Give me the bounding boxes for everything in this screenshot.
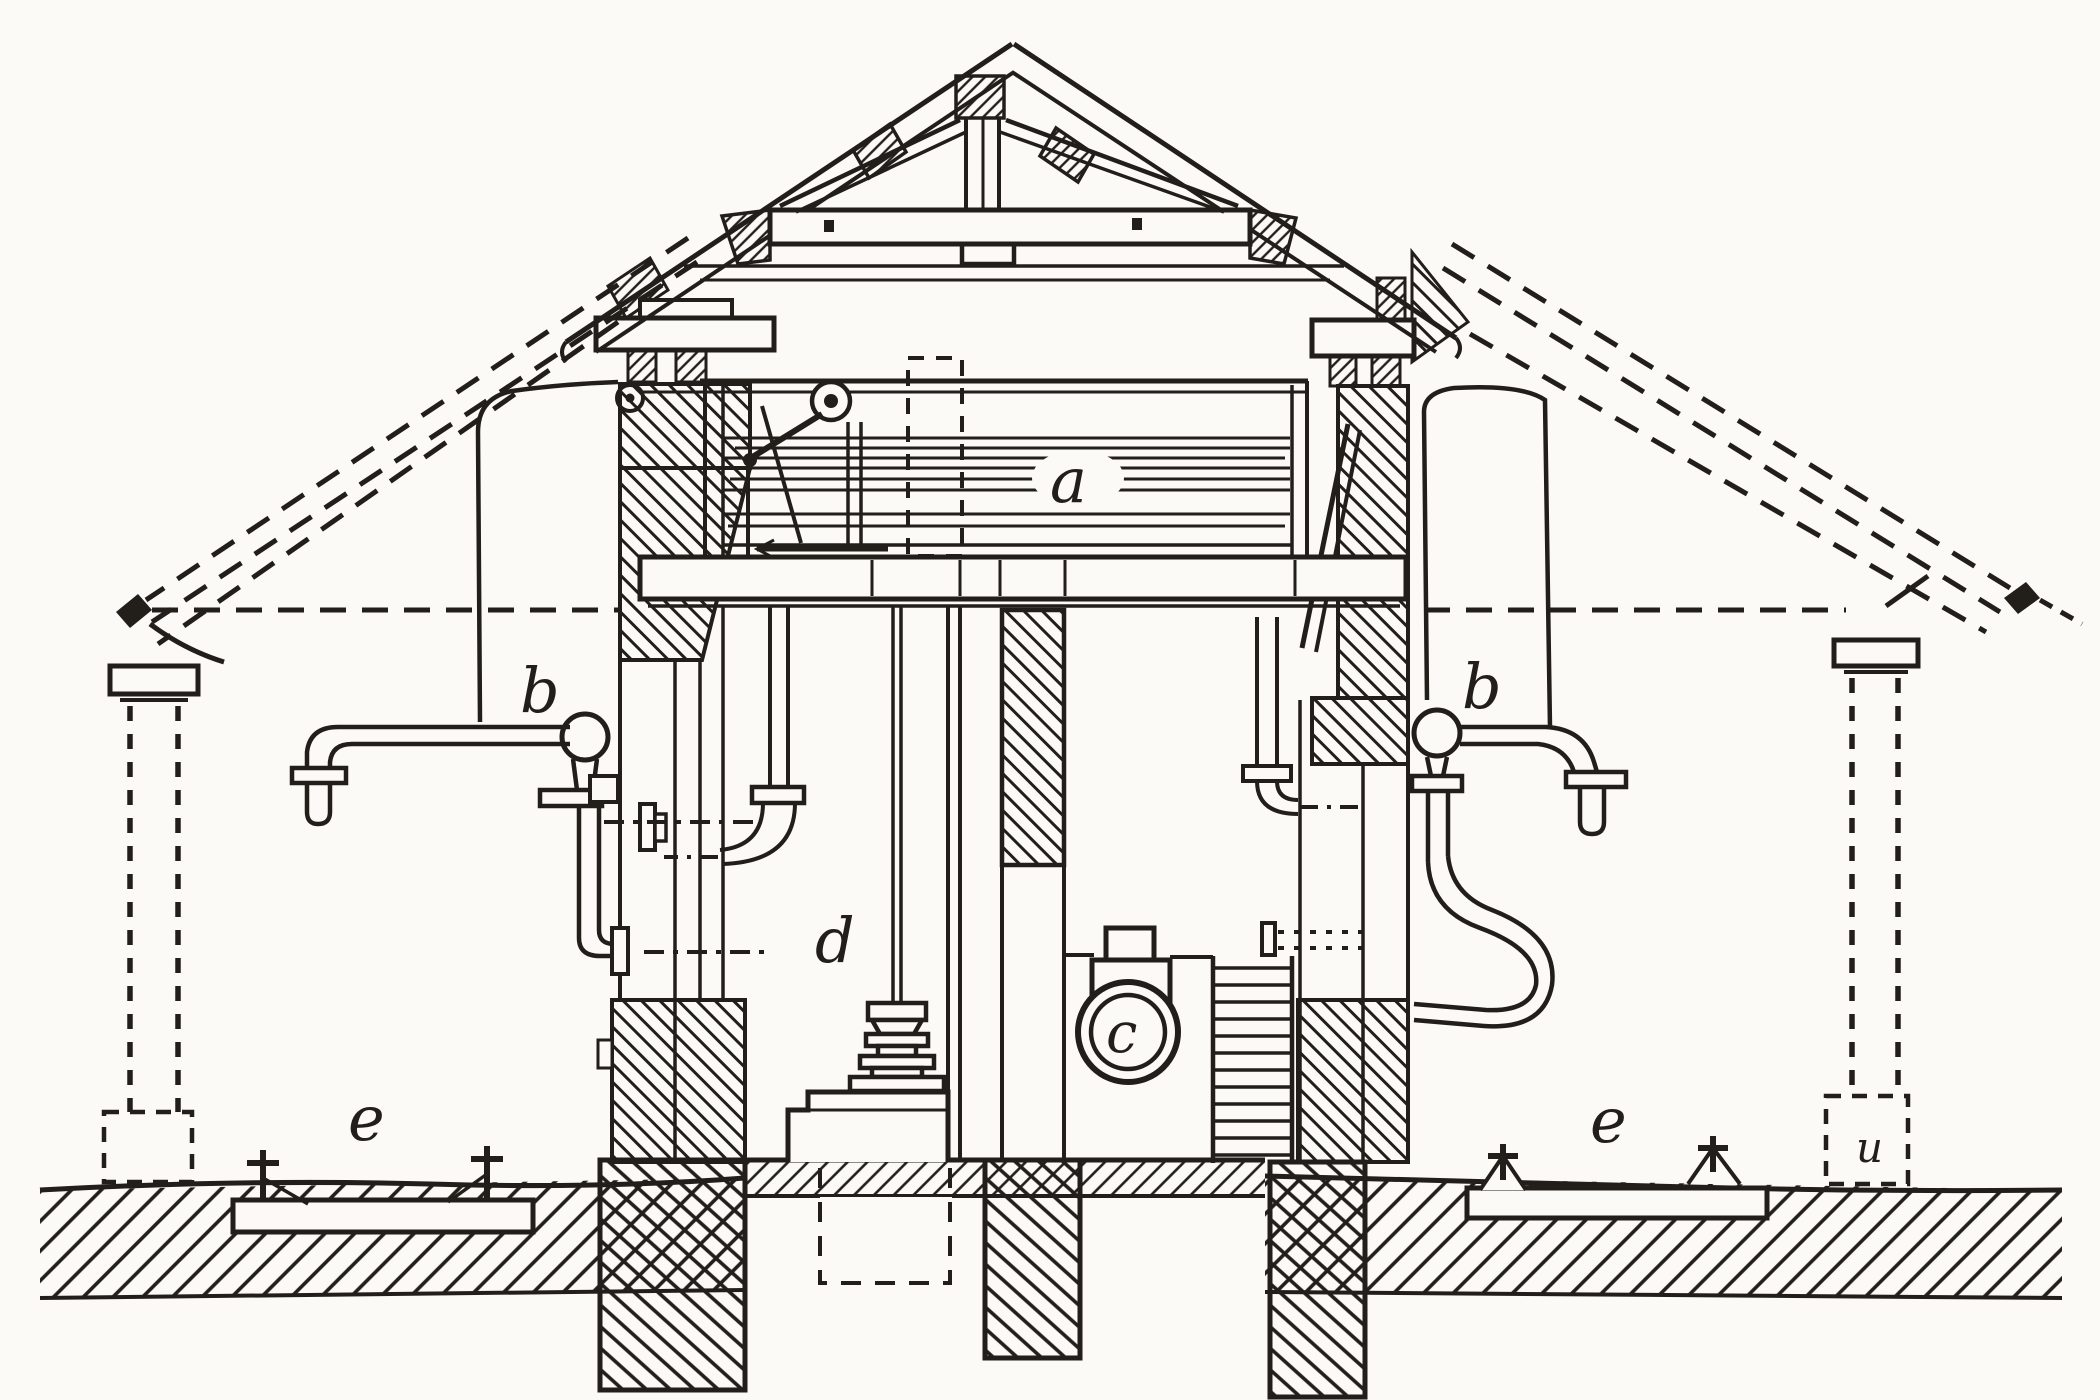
label-press: d xyxy=(815,904,855,977)
label-pipe-left: b xyxy=(520,654,560,727)
float-ball xyxy=(562,714,608,760)
float-ball xyxy=(1414,710,1460,756)
left-rafter xyxy=(566,44,1012,342)
right-column xyxy=(1826,640,1918,1184)
right-foundation-pier xyxy=(1270,1162,1365,1397)
left-foundation-pier xyxy=(600,1160,745,1390)
engraving-page: a b b c d e e u xyxy=(0,0,2100,1400)
building-section-engraving: a b b c d e e u xyxy=(0,0,2100,1400)
ladder xyxy=(1213,956,1292,1163)
center-foundation-pier xyxy=(985,1160,1080,1358)
label-trough-left: e xyxy=(348,1082,385,1155)
collar-beam xyxy=(770,210,1250,244)
label-footing: u xyxy=(1856,1123,1883,1172)
label-trough-right: e xyxy=(1590,1084,1627,1157)
right-water-pipe xyxy=(1412,710,1626,1026)
liquid-lines xyxy=(723,438,1290,526)
label-pipe-right: b xyxy=(1462,650,1502,723)
weight-stack xyxy=(850,1003,944,1091)
right-rafter xyxy=(1014,44,1456,338)
left-column xyxy=(104,666,198,1182)
label-cooling-tank: a xyxy=(1050,444,1087,517)
central-pier xyxy=(1002,610,1064,1160)
left-column-footing xyxy=(104,1112,192,1182)
press-pedestal xyxy=(788,1092,948,1162)
right-wall xyxy=(1243,252,1468,1162)
tank-platform xyxy=(640,557,1406,606)
label-pump: c xyxy=(1106,1001,1137,1066)
left-wall xyxy=(596,258,774,1162)
